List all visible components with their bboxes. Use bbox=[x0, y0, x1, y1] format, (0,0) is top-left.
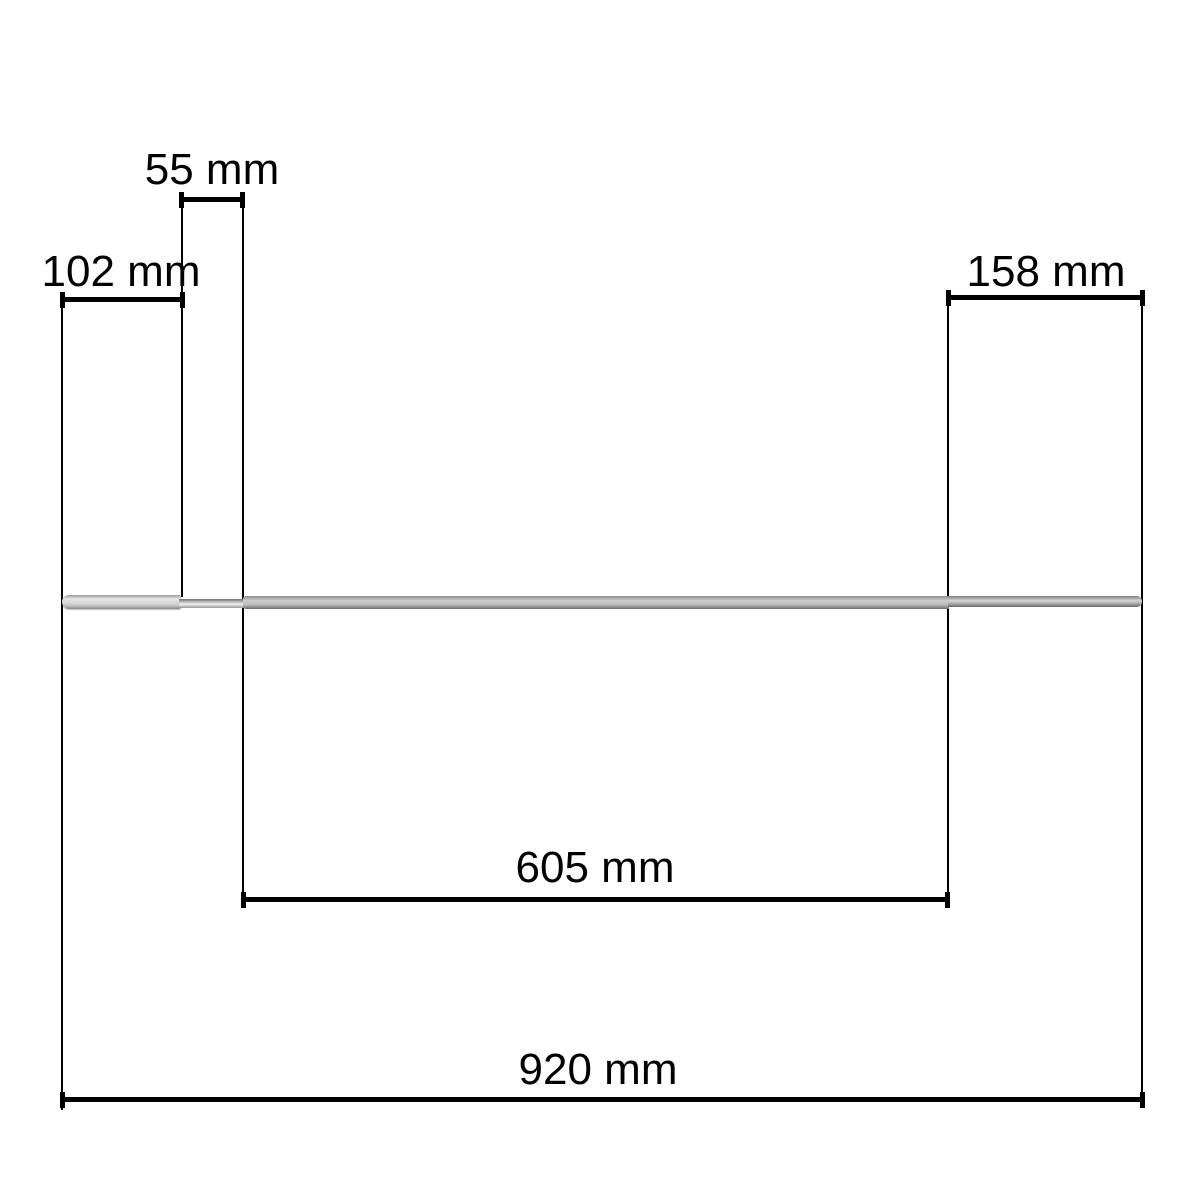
extension-line-rod-right-end bbox=[1141, 295, 1143, 1108]
dim-tip-length-tick-left bbox=[946, 290, 951, 306]
dim-overall-length bbox=[62, 1092, 1143, 1108]
dim-blade-length-tick-left bbox=[241, 892, 246, 908]
dim-blade-length bbox=[243, 892, 948, 908]
dim-blade-length-label: 605 mm bbox=[516, 846, 675, 890]
dim-blade-length-tick-right bbox=[945, 892, 950, 908]
extension-line-neck-blade-joint bbox=[242, 197, 244, 903]
technical-drawing-canvas: 55 mm 102 mm 158 mm 605 mm 920 mm bbox=[0, 0, 1200, 1200]
dim-overall-length-label: 920 mm bbox=[519, 1048, 678, 1092]
rod-handle-segment bbox=[62, 595, 181, 609]
dim-tip-length-label: 158 mm bbox=[967, 250, 1126, 294]
extension-line-rod-left-end bbox=[61, 295, 63, 1110]
dim-overall-length-line bbox=[62, 1097, 1143, 1102]
dim-neck-length-tick-right bbox=[240, 192, 245, 208]
rod-neck-segment bbox=[179, 599, 244, 608]
dim-blade-length-line bbox=[243, 897, 948, 902]
rod-blade-segment bbox=[243, 596, 949, 609]
dim-neck-length-tick-left bbox=[179, 192, 184, 208]
dim-neck-length bbox=[181, 192, 243, 208]
dim-tip-length-tick-right bbox=[1140, 290, 1145, 306]
dim-handle-length-label: 102 mm bbox=[42, 250, 201, 294]
dim-overall-length-tick-left bbox=[60, 1092, 65, 1108]
dim-overall-length-tick-right bbox=[1140, 1092, 1145, 1108]
rod-tip-segment bbox=[948, 596, 1142, 607]
dim-handle-length-line bbox=[62, 297, 183, 302]
dim-neck-length-line bbox=[181, 197, 243, 202]
dim-neck-length-label: 55 mm bbox=[145, 148, 279, 192]
